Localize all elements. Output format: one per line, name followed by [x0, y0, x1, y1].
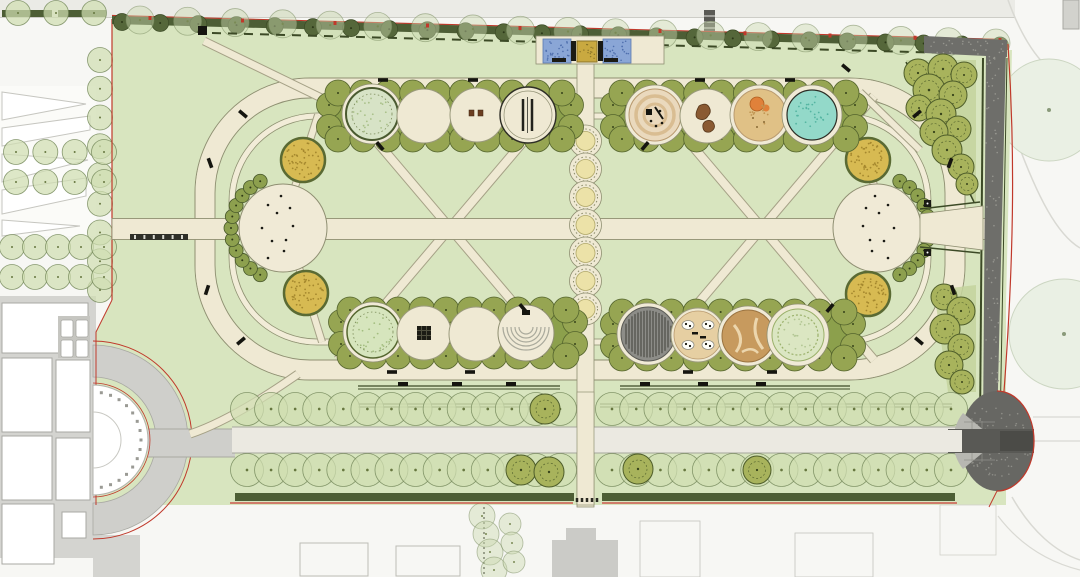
north-entrance: [536, 36, 664, 64]
park-master-plan: [0, 0, 1080, 577]
site-plan-canvas: [0, 0, 1080, 577]
